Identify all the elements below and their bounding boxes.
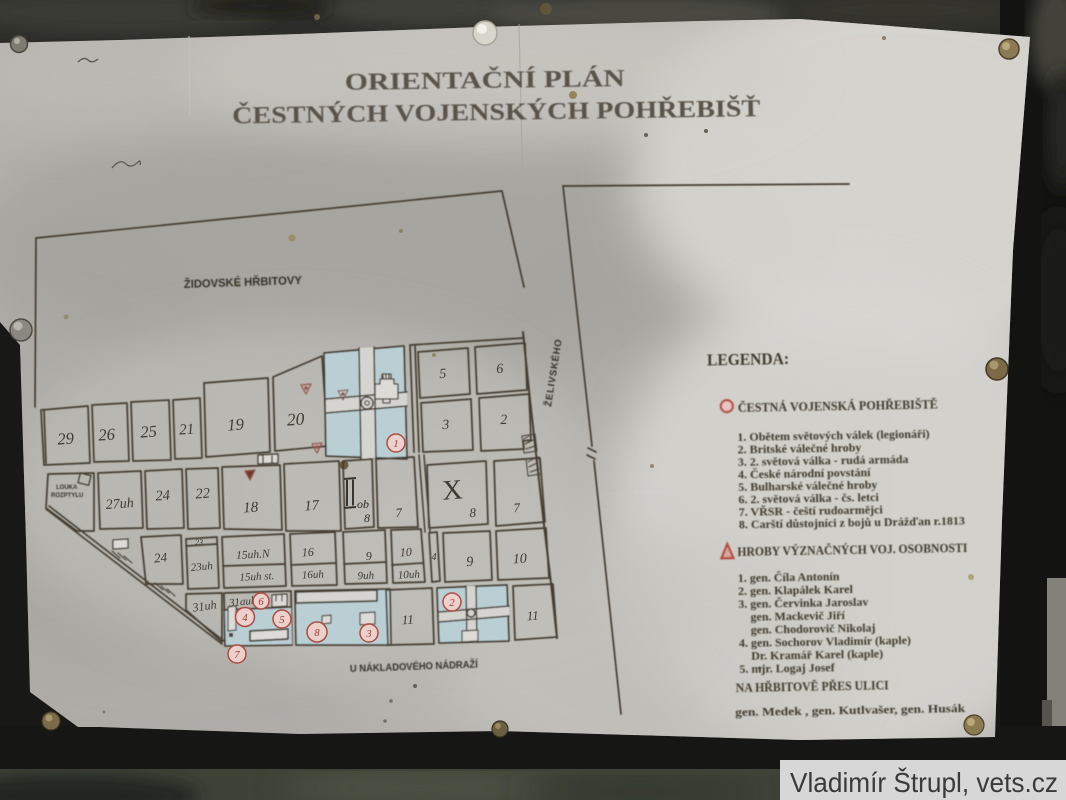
svg-text:26: 26	[98, 424, 117, 444]
svg-text:10: 10	[512, 552, 527, 568]
svg-text:8: 8	[364, 511, 370, 525]
svg-text:18: 18	[243, 499, 260, 516]
svg-text:ob: ob	[357, 497, 369, 511]
svg-text:6: 6	[496, 362, 504, 377]
svg-text:LEGENDA:: LEGENDA:	[707, 349, 789, 369]
svg-text:ROZPTYLU: ROZPTYLU	[51, 493, 83, 499]
svg-text:10: 10	[399, 545, 412, 560]
svg-text:23: 23	[195, 538, 203, 547]
svg-text:11: 11	[401, 612, 414, 628]
svg-text:11: 11	[526, 608, 539, 624]
svg-text:10uh: 10uh	[398, 568, 421, 581]
svg-text:LOUKA: LOUKA	[56, 485, 78, 491]
svg-text:1: 1	[393, 439, 398, 450]
svg-text:15uh.N: 15uh.N	[236, 548, 271, 562]
svg-text:29: 29	[57, 428, 75, 448]
svg-text:16: 16	[301, 545, 314, 560]
svg-text:9: 9	[365, 549, 372, 563]
svg-text:4: 4	[432, 552, 437, 563]
svg-text:4: 4	[242, 613, 248, 624]
svg-text:9: 9	[466, 555, 474, 570]
svg-text:NA HŘBITOVĚ PŘES ULICI: NA HŘBITOVĚ PŘES ULICI	[736, 678, 889, 695]
svg-text:16uh: 16uh	[302, 568, 325, 581]
svg-text:3: 3	[441, 418, 450, 433]
svg-text:8: 8	[314, 628, 320, 639]
svg-text:2: 2	[500, 413, 508, 428]
svg-text:24: 24	[153, 549, 168, 565]
svg-text:9uh: 9uh	[357, 570, 375, 583]
svg-text:20: 20	[286, 408, 305, 429]
svg-text:X: X	[441, 474, 463, 506]
svg-text:27uh: 27uh	[105, 496, 134, 513]
svg-text:23uh: 23uh	[190, 560, 213, 574]
svg-text:22: 22	[195, 486, 211, 503]
svg-text:3: 3	[365, 629, 371, 640]
svg-text:5: 5	[279, 615, 284, 626]
svg-text:7: 7	[234, 650, 240, 661]
svg-text:5. mjr. Logaj Josef: 5. mjr. Logaj Josef	[739, 660, 835, 676]
svg-text:21: 21	[179, 422, 195, 439]
svg-text:2: 2	[449, 598, 455, 609]
svg-text:25: 25	[140, 421, 158, 441]
svg-text:6: 6	[258, 597, 264, 608]
svg-text:17: 17	[304, 497, 320, 514]
svg-text:Vladimír Štrupl, vets.cz: Vladimír Štrupl, vets.cz	[790, 767, 1058, 798]
svg-text:ORIENTAČNÍ PLÁN: ORIENTAČNÍ PLÁN	[345, 65, 626, 96]
svg-text:24: 24	[155, 488, 171, 505]
svg-text:5: 5	[439, 367, 447, 382]
svg-text:15uh st.: 15uh st.	[239, 570, 274, 584]
svg-text:19: 19	[227, 414, 245, 434]
